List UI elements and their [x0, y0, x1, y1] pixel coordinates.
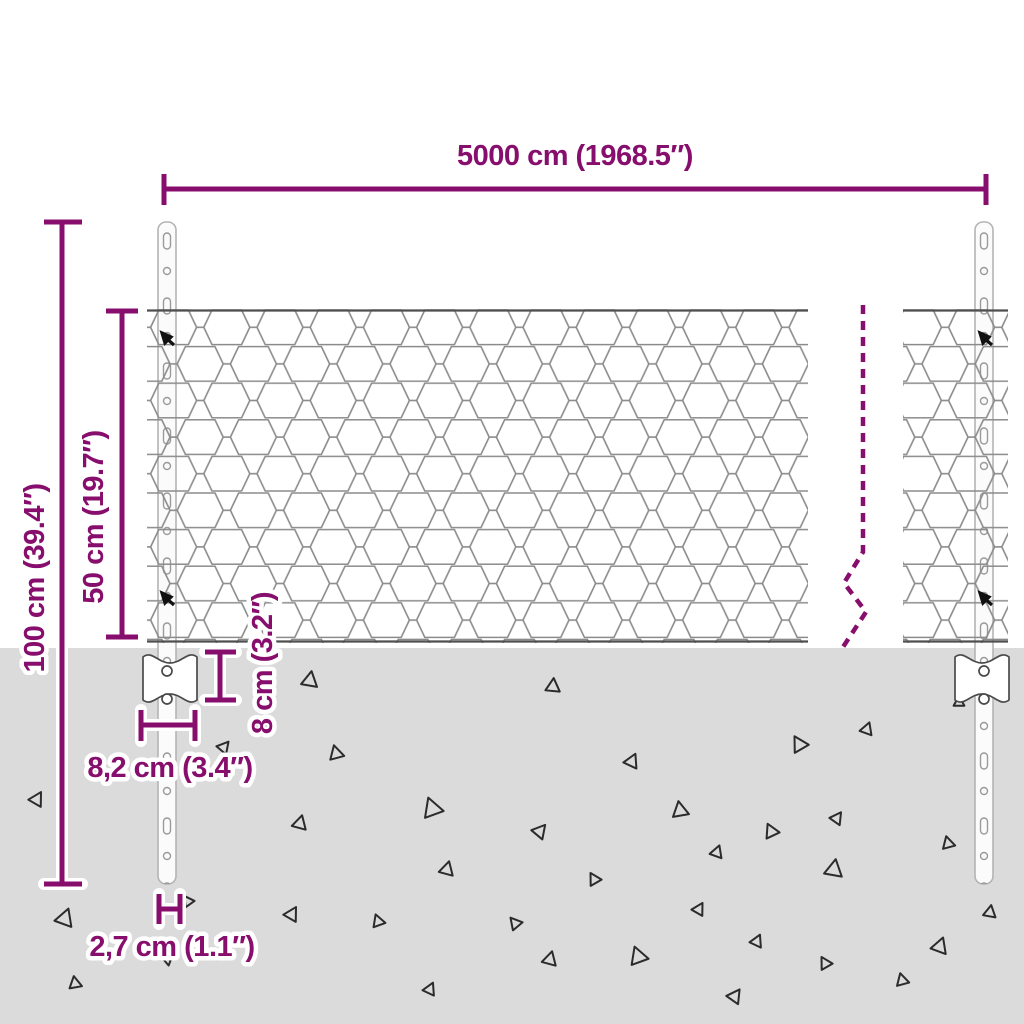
post-width-label: 2,7 cm (1.1″): [89, 931, 254, 963]
mesh-height-label: 50 cm (19.7″): [78, 430, 110, 603]
wire-mesh-right: [903, 309, 1008, 643]
right-anchor-plate: [955, 655, 1009, 704]
anchor-width-label: 8,2 cm (3.4″): [87, 752, 252, 784]
total-height-label: 100 cm (39.4″): [19, 483, 51, 672]
fence-diagram-canvas: 5000 cm (1968.5″) 100 cm (39.4″) 50 cm (…: [0, 0, 1024, 1024]
break-line: [843, 305, 866, 647]
dim-mesh-height: [106, 311, 138, 637]
anchor-height-label: 8 cm (3.2″): [247, 592, 279, 734]
ground: [0, 648, 1024, 1024]
dim-span: [164, 174, 986, 205]
span-label: 5000 cm (1968.5″): [457, 140, 693, 172]
fence-dimension-diagram: 5000 cm (1968.5″) 100 cm (39.4″) 50 cm (…: [0, 0, 1024, 1024]
left-anchor-plate: [143, 655, 197, 704]
